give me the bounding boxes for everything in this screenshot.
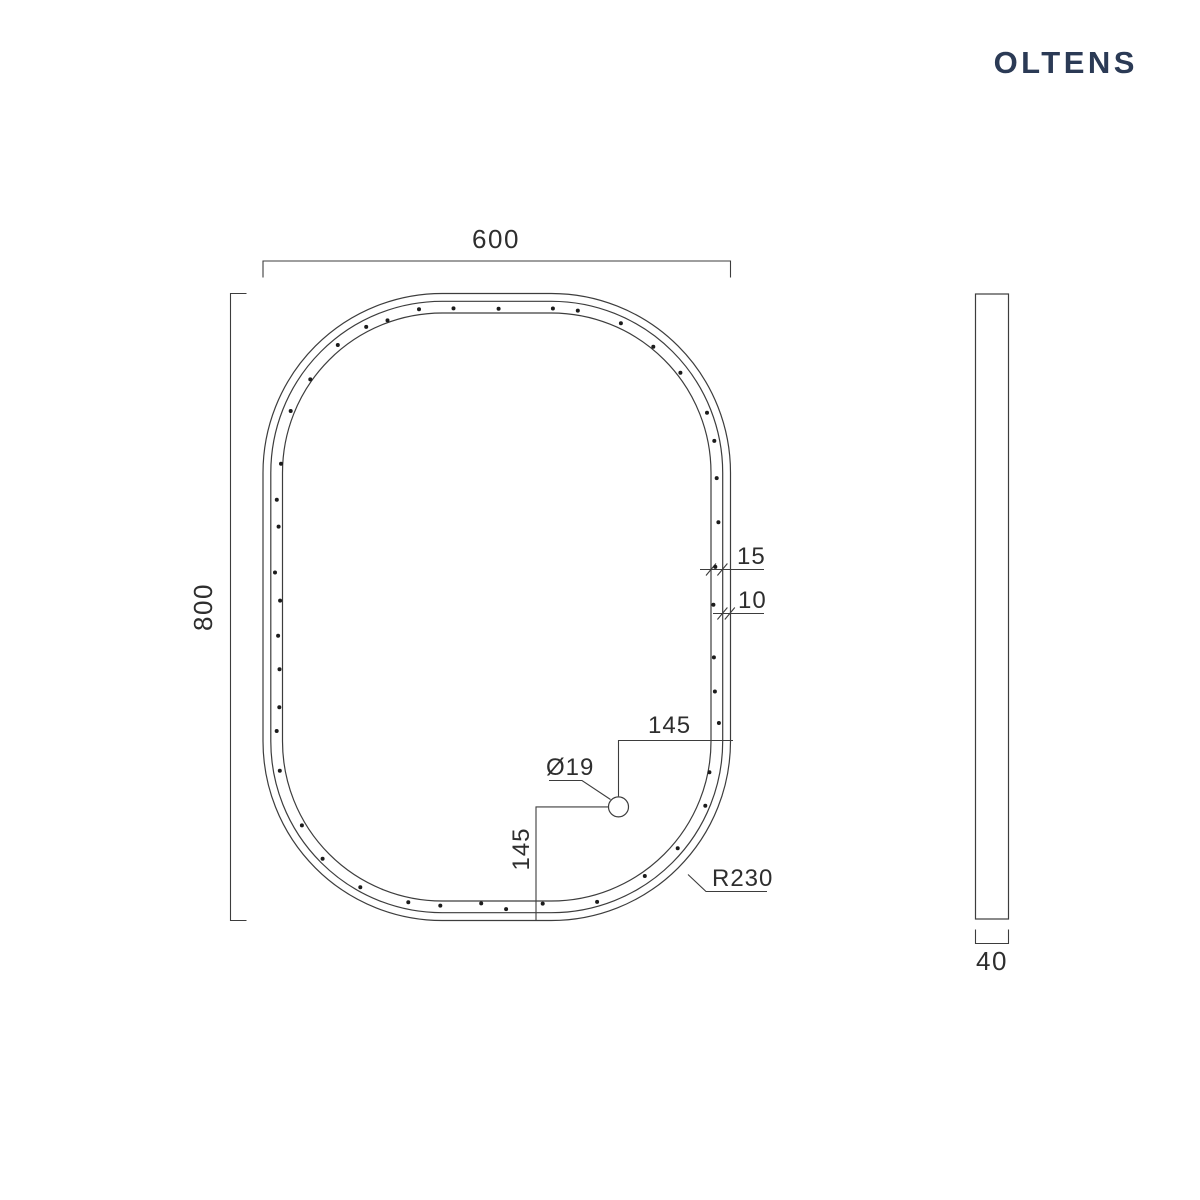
led-dot [479,901,483,905]
dim-frame-band-label: 15 [737,543,766,570]
led-dot [308,377,312,381]
dim-hole-diameter-leader [549,781,611,800]
led-dot [278,769,282,773]
front-view [263,294,731,921]
dim-width-label: 600 [472,224,520,254]
led-dot [336,343,340,347]
led-guide [278,308,716,906]
led-dot [551,307,555,311]
led-dot [438,904,442,908]
led-dot [300,823,304,827]
side-profile-outline [976,294,1009,919]
mounting-hole [609,797,629,817]
led-dot [278,599,282,603]
led-dot [497,307,501,311]
dim-depth [976,930,1009,944]
led-dot [595,900,599,904]
led-dot [277,705,281,709]
led-dot [321,857,325,861]
dim-width [263,261,731,278]
led-dot [707,770,711,774]
led-dot [364,325,368,329]
led-dot [676,846,680,850]
dim-corner-radius-label: R230 [712,865,773,892]
drawing-lines [231,261,1009,944]
led-dot [279,462,283,466]
side-view [976,294,1009,919]
led-dot [417,307,421,311]
led-dot [576,309,580,313]
led-dot [277,525,281,529]
brand-logo: OLTENS [994,45,1138,80]
led-dot [651,345,655,349]
led-dots [273,306,721,911]
led-dot [678,371,682,375]
led-dot [504,907,508,911]
dim-hole-offset-bottom-label: 145 [508,827,535,870]
led-dot [386,318,390,322]
led-dot [715,476,719,480]
led-dot [541,902,545,906]
dim-hole-diameter-label: Ø19 [546,754,594,781]
mirror-inner-outline [283,313,712,901]
led-dot [406,900,410,904]
led-dot [713,565,717,569]
dim-height [231,294,247,921]
mirror-middle-outline [271,301,723,912]
dim-depth-label: 40 [976,946,1008,976]
technical-drawing: OLTENS [0,0,1200,1200]
led-dot [703,804,707,808]
dim-height-label: 800 [188,583,218,631]
dim-hole-offset-right-label: 145 [648,712,691,739]
led-dot [275,729,279,733]
led-dot [275,498,279,502]
led-dot [712,439,716,443]
led-dot [358,885,362,889]
led-dot [712,655,716,659]
led-dot [705,411,709,415]
led-dot [716,520,720,524]
led-dot [452,306,456,310]
led-dot [619,321,623,325]
dim-edge-band-label: 10 [738,587,767,614]
led-dot [276,634,280,638]
led-dot [289,409,293,413]
led-dot [713,690,717,694]
led-dot [643,874,647,878]
led-dot [711,603,715,607]
led-dot [273,571,277,575]
led-dot [278,667,282,671]
led-dot [717,721,721,725]
mirror-outer-outline [263,294,731,921]
